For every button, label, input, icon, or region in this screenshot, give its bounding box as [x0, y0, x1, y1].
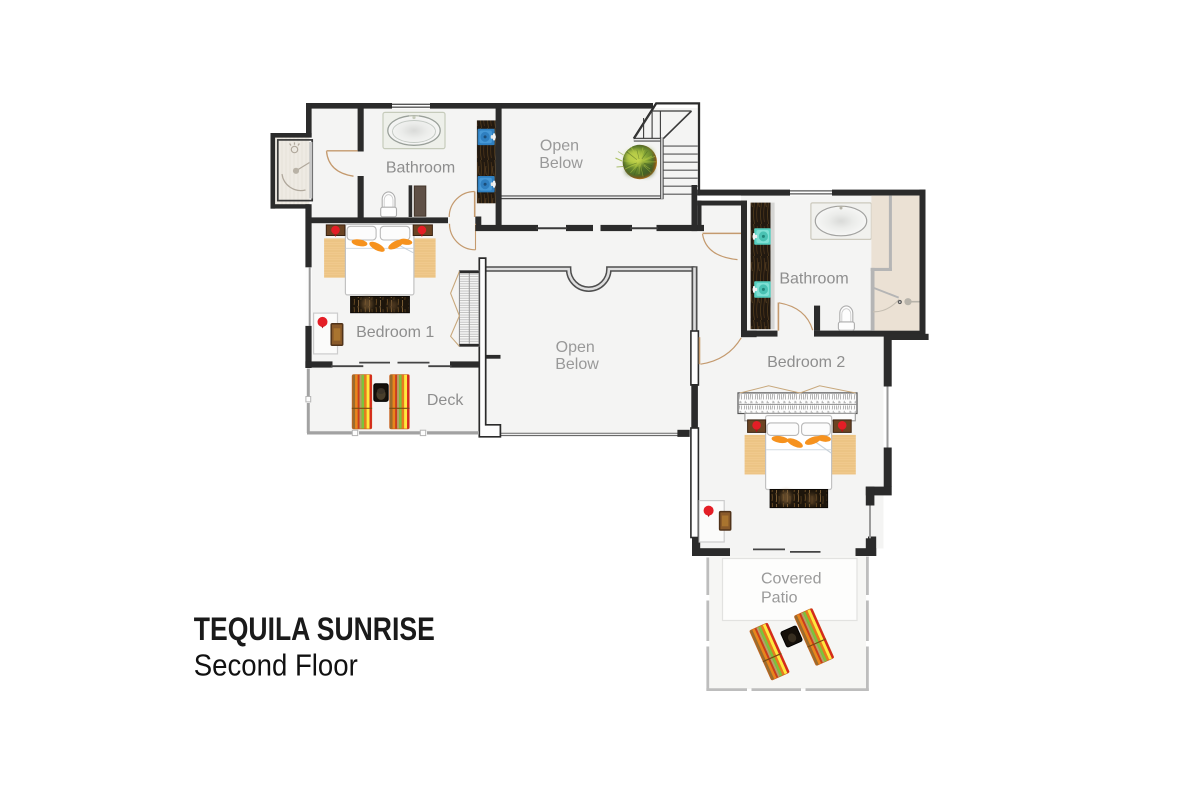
- svg-text:Second Floor: Second Floor: [194, 648, 358, 682]
- svg-text:Patio: Patio: [761, 590, 798, 607]
- svg-text:Covered: Covered: [761, 571, 821, 588]
- svg-text:Below: Below: [555, 356, 599, 373]
- svg-text:Bedroom 2: Bedroom 2: [767, 354, 845, 371]
- svg-text:Bathroom: Bathroom: [779, 270, 848, 287]
- svg-text:Bathroom: Bathroom: [386, 160, 455, 177]
- svg-text:Below: Below: [539, 155, 583, 172]
- svg-text:Deck: Deck: [427, 392, 464, 409]
- svg-text:TEQUILA SUNRISE: TEQUILA SUNRISE: [194, 611, 435, 647]
- svg-text:Open: Open: [540, 137, 579, 154]
- svg-text:Open: Open: [556, 339, 595, 356]
- svg-text:Bedroom 1: Bedroom 1: [356, 324, 434, 341]
